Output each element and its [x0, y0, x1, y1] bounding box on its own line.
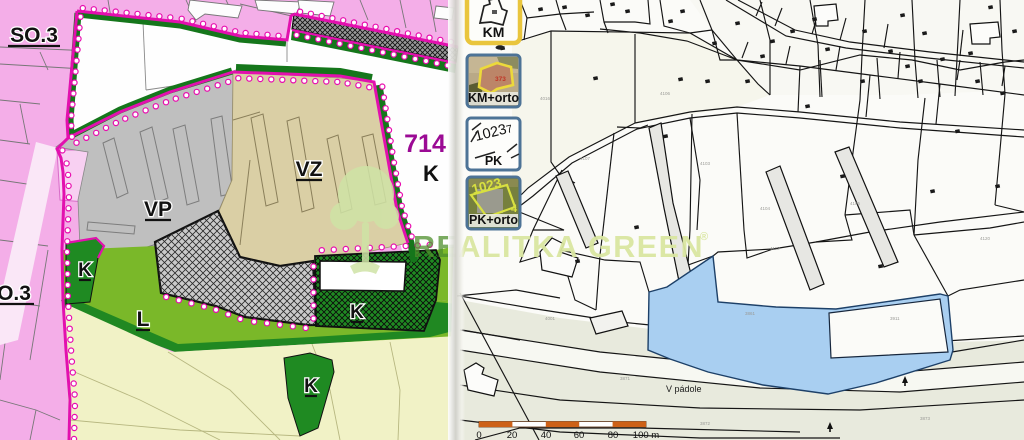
svg-text:4106: 4106: [660, 91, 671, 96]
svg-text:4120: 4120: [980, 236, 991, 241]
svg-text:100 m: 100 m: [633, 430, 659, 440]
svg-text:V pádole: V pádole: [666, 384, 702, 394]
svg-text:O.3: O.3: [0, 282, 31, 305]
svg-text:4016: 4016: [540, 96, 551, 101]
svg-text:K: K: [304, 376, 318, 397]
svg-text:®: ®: [700, 231, 708, 243]
svg-text:4001: 4001: [545, 316, 556, 321]
svg-text:4107: 4107: [580, 156, 591, 161]
svg-text:4112: 4112: [770, 246, 780, 251]
svg-text:3872: 3872: [700, 421, 711, 426]
svg-text:SO.3: SO.3: [10, 24, 58, 47]
svg-text:VZ: VZ: [296, 158, 323, 181]
svg-text:40: 40: [541, 430, 552, 440]
svg-text:K: K: [423, 161, 439, 186]
svg-text:714: 714: [404, 130, 446, 158]
svg-text:4105: 4105: [850, 201, 861, 206]
svg-text:3873: 3873: [920, 416, 931, 421]
svg-text:K: K: [78, 260, 92, 281]
svg-text:3911: 3911: [890, 316, 900, 321]
svg-text:80: 80: [608, 430, 619, 440]
svg-text:KM+orto: KM+orto: [468, 91, 519, 105]
svg-text:20: 20: [507, 430, 518, 440]
svg-text:PK: PK: [485, 154, 502, 168]
svg-text:373: 373: [495, 76, 506, 83]
svg-text:PK+orto: PK+orto: [469, 213, 518, 227]
svg-text:K: K: [350, 302, 364, 323]
svg-text:4104: 4104: [760, 206, 771, 211]
svg-text:3861: 3861: [745, 311, 756, 316]
svg-text:0: 0: [476, 430, 481, 440]
svg-text:4103: 4103: [700, 161, 711, 166]
svg-text:KM: KM: [483, 24, 505, 40]
svg-text:L: L: [137, 308, 150, 331]
svg-text:60: 60: [574, 430, 585, 440]
svg-text:3871: 3871: [620, 376, 631, 381]
svg-text:VP: VP: [144, 198, 172, 221]
